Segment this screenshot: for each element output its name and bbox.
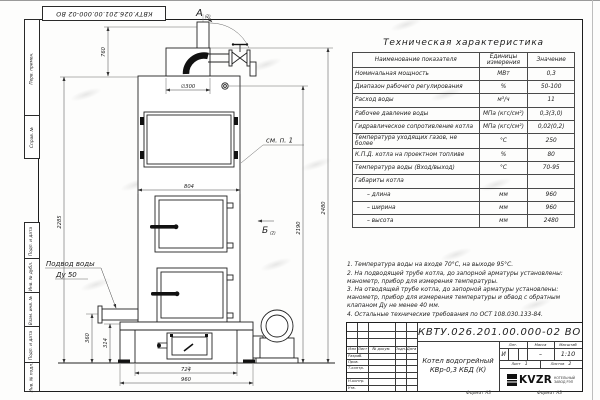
row-name: Рабочее давление воды <box>353 107 480 120</box>
row-name: Гидравлическое сопротивление котла <box>353 120 480 133</box>
row-value: 960 <box>528 188 575 201</box>
row-name: – длина <box>353 188 480 201</box>
table-row: – ширинамм960 <box>353 201 575 214</box>
chimney-pipe <box>197 22 209 50</box>
drawing-sheet: КВТУ.026.201.00.000-02 ВО Перв. примен. … <box>0 0 600 400</box>
dim-base-width: 960 <box>181 377 192 383</box>
mass-value: – <box>527 348 554 360</box>
row-value: 2480 <box>528 214 575 227</box>
dim-base-inner-width: 724 <box>181 367 191 373</box>
dim-base-height: 314 <box>103 338 109 348</box>
logo-caption-line2: ЗАВОД РЭП <box>554 380 575 384</box>
product-name: Котел водогрейный КВр-0,3 КБД (К) <box>422 357 493 375</box>
water-inlet-pipe <box>98 306 138 323</box>
dim-total-height: 2480 <box>321 201 327 215</box>
row-value: 0,3(3,0) <box>528 107 575 120</box>
row-tkontr: Т.контр. <box>348 365 368 371</box>
water-supply-label: Подвод воды <box>46 260 95 268</box>
outlet-stub <box>250 62 256 76</box>
note-1: 1. Температура воды на входе 70°С, на вы… <box>347 262 579 270</box>
table-row: Рабочее давление водыМПа (кгс/см²)0,3(3,… <box>353 107 575 120</box>
base-section <box>118 322 255 363</box>
dim-pipe-height: 360 <box>85 332 91 343</box>
row-name: Габариты котла <box>353 175 480 188</box>
sheets-value: 2 <box>568 362 571 367</box>
table-row: Диапазон рабочего регулирования%50-100 <box>353 81 575 94</box>
title-block: Изм Лист № докум. Подп. Дата Разраб. Про… <box>346 322 583 392</box>
row-units: мм <box>479 188 528 201</box>
water-supply-dn: Ду 50 <box>55 271 77 279</box>
col-data: Дата <box>406 346 417 353</box>
scale-label: Масштаб <box>554 341 582 348</box>
callout-leader <box>241 145 304 163</box>
row-name: Номинальная мощность <box>353 68 480 81</box>
col-izm: Изм <box>347 346 357 353</box>
table-row: Гидравлическое сопротивление котлаМПа (к… <box>353 120 575 133</box>
sheet-value: 1 <box>525 362 528 367</box>
row-units <box>479 175 528 188</box>
col-units: Единицы измерения <box>479 53 528 68</box>
row-name: Диапазон рабочего регулирования <box>353 81 480 94</box>
company-logo: KVZR КОТЕЛЬНЫЙ ЗАВОД РЭП <box>500 369 582 390</box>
table-row: – длинамм960 <box>353 188 575 201</box>
kvzr-logo-icon <box>507 374 517 386</box>
row-value: 50-100 <box>528 81 575 94</box>
tech-table-header: Наименование показателя Единицы измерени… <box>353 53 575 68</box>
dim-body-width: 804 <box>184 184 194 190</box>
view-b-sub: (2) <box>270 231 276 236</box>
col-podp: Подп. <box>395 346 406 353</box>
note-2: 2. На подводящей трубе котла, до запорно… <box>347 271 579 287</box>
table-row: Температура уходящих газов, не более°С25… <box>353 133 575 148</box>
upper-door <box>150 196 233 252</box>
blower-fan <box>253 310 298 363</box>
row-name: Температура воды (Вход/выход) <box>353 162 480 175</box>
table-row: Температура воды (Вход/выход)°С70-95 <box>353 162 575 175</box>
view-a-label: А <box>195 8 203 19</box>
row-name: Расход воды <box>353 94 480 107</box>
row-value: 250 <box>528 133 575 148</box>
row-value: 960 <box>528 201 575 214</box>
row-units: мм <box>479 201 528 214</box>
product-name-line2: КВр-0,3 КБД (К) <box>422 366 493 375</box>
format-label-1: Формат А3 <box>466 391 491 396</box>
row-name: К.П.Д. котла на проектном топливе <box>353 148 480 161</box>
format-label-2: Формат А3 <box>537 391 562 396</box>
row-value: 70-95 <box>528 162 575 175</box>
table-row: Расход водым³/ч11 <box>353 94 575 107</box>
row-value <box>528 175 575 188</box>
note-3: 3. На отводящей трубе котла, до запорной… <box>347 287 579 310</box>
logo-caption: КОТЕЛЬНЫЙ ЗАВОД РЭП <box>554 376 575 384</box>
dim-left-height: 2285 <box>57 215 63 229</box>
col-name: Наименование показателя <box>353 53 480 68</box>
product-name-line1: Котел водогрейный <box>422 357 493 366</box>
doc-number: КВТУ.026.201.00.000-02 ВО <box>418 327 581 338</box>
logo-caption-line1: КОТЕЛЬНЫЙ <box>554 376 575 380</box>
shutoff-valve <box>229 43 250 66</box>
tech-table: Наименование показателя Единицы измерени… <box>352 52 575 228</box>
table-row: Номинальная мощностьМВт0,3 <box>353 68 575 81</box>
row-utv: Утв. <box>348 385 368 391</box>
row-name: – высота <box>353 214 480 227</box>
tech-table-title: Техническая характеристика <box>352 38 575 48</box>
row-name: – ширина <box>353 201 480 214</box>
dim-chimney-height: 760 <box>101 46 107 57</box>
sheets-label: Листов <box>551 362 565 366</box>
water-leader <box>101 268 116 308</box>
sheet-label: Лист <box>511 362 520 366</box>
note-4: 4. Остальные технические требования по О… <box>347 312 579 320</box>
row-name: Температура уходящих газов, не более <box>353 133 480 148</box>
row-units: мм <box>479 214 528 227</box>
row-units: % <box>479 81 528 94</box>
table-row: Габариты котла <box>353 175 575 188</box>
dim-inner-height: 2190 <box>296 221 302 235</box>
lit-label: Лит. <box>499 341 527 348</box>
table-row: К.П.Д. котла на проектном топливе%80 <box>353 148 575 161</box>
row-value: 11 <box>528 94 575 107</box>
lit-value: И <box>499 348 508 360</box>
row-units: °С <box>479 133 528 148</box>
logo-text: KVZR <box>519 374 552 386</box>
row-units: °С <box>479 162 528 175</box>
dim-chimney-diameter: ∅300 <box>181 84 196 90</box>
view-b-label: Б <box>262 226 268 236</box>
row-units: МВт <box>479 68 528 81</box>
col-list: Лист <box>357 346 368 353</box>
scale-value: 1:10 <box>554 348 582 360</box>
row-units: м³/ч <box>479 94 528 107</box>
row-value: 80 <box>528 148 575 161</box>
col-dokum: № докум. <box>368 346 395 353</box>
technical-notes: 1. Температура воды на входе 70°С, на вы… <box>347 262 579 320</box>
col-value: Значение <box>528 53 575 68</box>
row-units: МПа (кгс/см²) <box>479 120 528 133</box>
upper-hatch <box>140 112 238 167</box>
callout-see-item1: см. п. 1 <box>266 137 293 145</box>
mass-label: Масса <box>527 341 554 348</box>
tech-characteristics: Техническая характеристика Наименование … <box>352 38 575 228</box>
lower-door <box>151 268 233 322</box>
row-value: 0,02(0,2) <box>528 120 575 133</box>
row-units: МПа (кгс/см²) <box>479 107 528 120</box>
row-value: 0,3 <box>528 68 575 81</box>
table-row: – высотамм2480 <box>353 214 575 227</box>
row-units: % <box>479 148 528 161</box>
